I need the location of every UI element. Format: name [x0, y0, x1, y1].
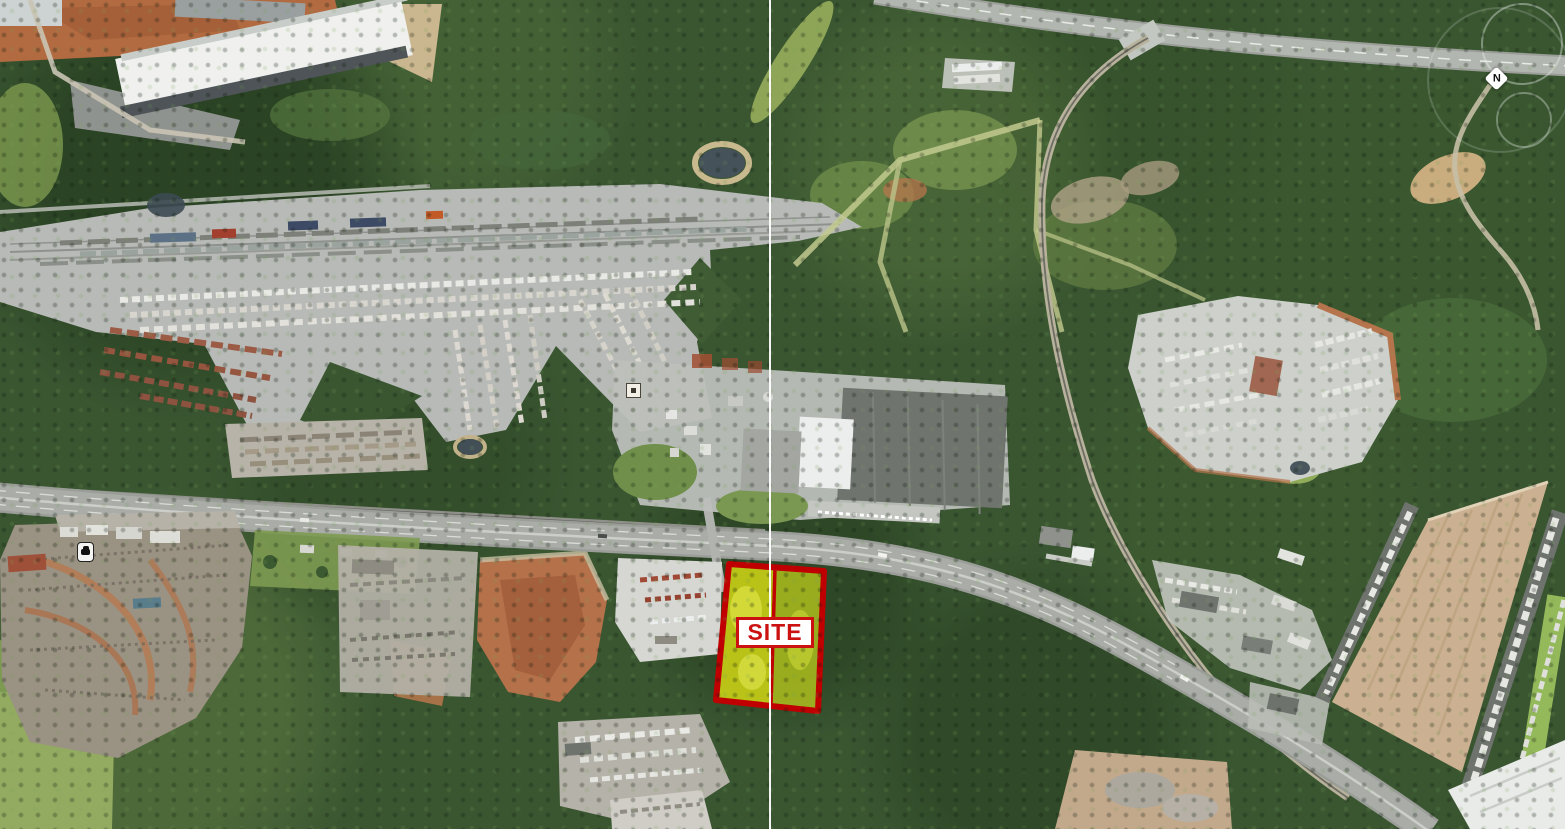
equipment-lot-left — [338, 545, 478, 697]
north-letter: N — [1493, 73, 1501, 84]
plant-white-roof — [796, 417, 854, 490]
lumber-yard — [225, 418, 428, 478]
car-glyph — [81, 549, 90, 555]
facility-top-center — [942, 58, 1015, 92]
industrial-plant — [612, 354, 1010, 524]
square-poi-icon — [626, 383, 641, 398]
car-poi-icon — [77, 542, 94, 562]
site-label-text: SITE — [747, 621, 802, 644]
plant-main-roof — [837, 388, 1008, 508]
trailer-yard-bottom — [558, 714, 730, 829]
red-roof-building — [7, 554, 46, 573]
site-label: SITE — [736, 617, 814, 648]
commercial-cluster — [1039, 526, 1095, 564]
aerial-map: SITE N — [0, 0, 1565, 829]
page-seam-line — [769, 0, 771, 829]
square-poi-center — [631, 388, 636, 393]
truck-yard-right — [1128, 296, 1398, 482]
junkyard — [0, 511, 252, 758]
map-scene — [0, 0, 1565, 829]
truck-lot-west-of-site — [615, 558, 722, 662]
